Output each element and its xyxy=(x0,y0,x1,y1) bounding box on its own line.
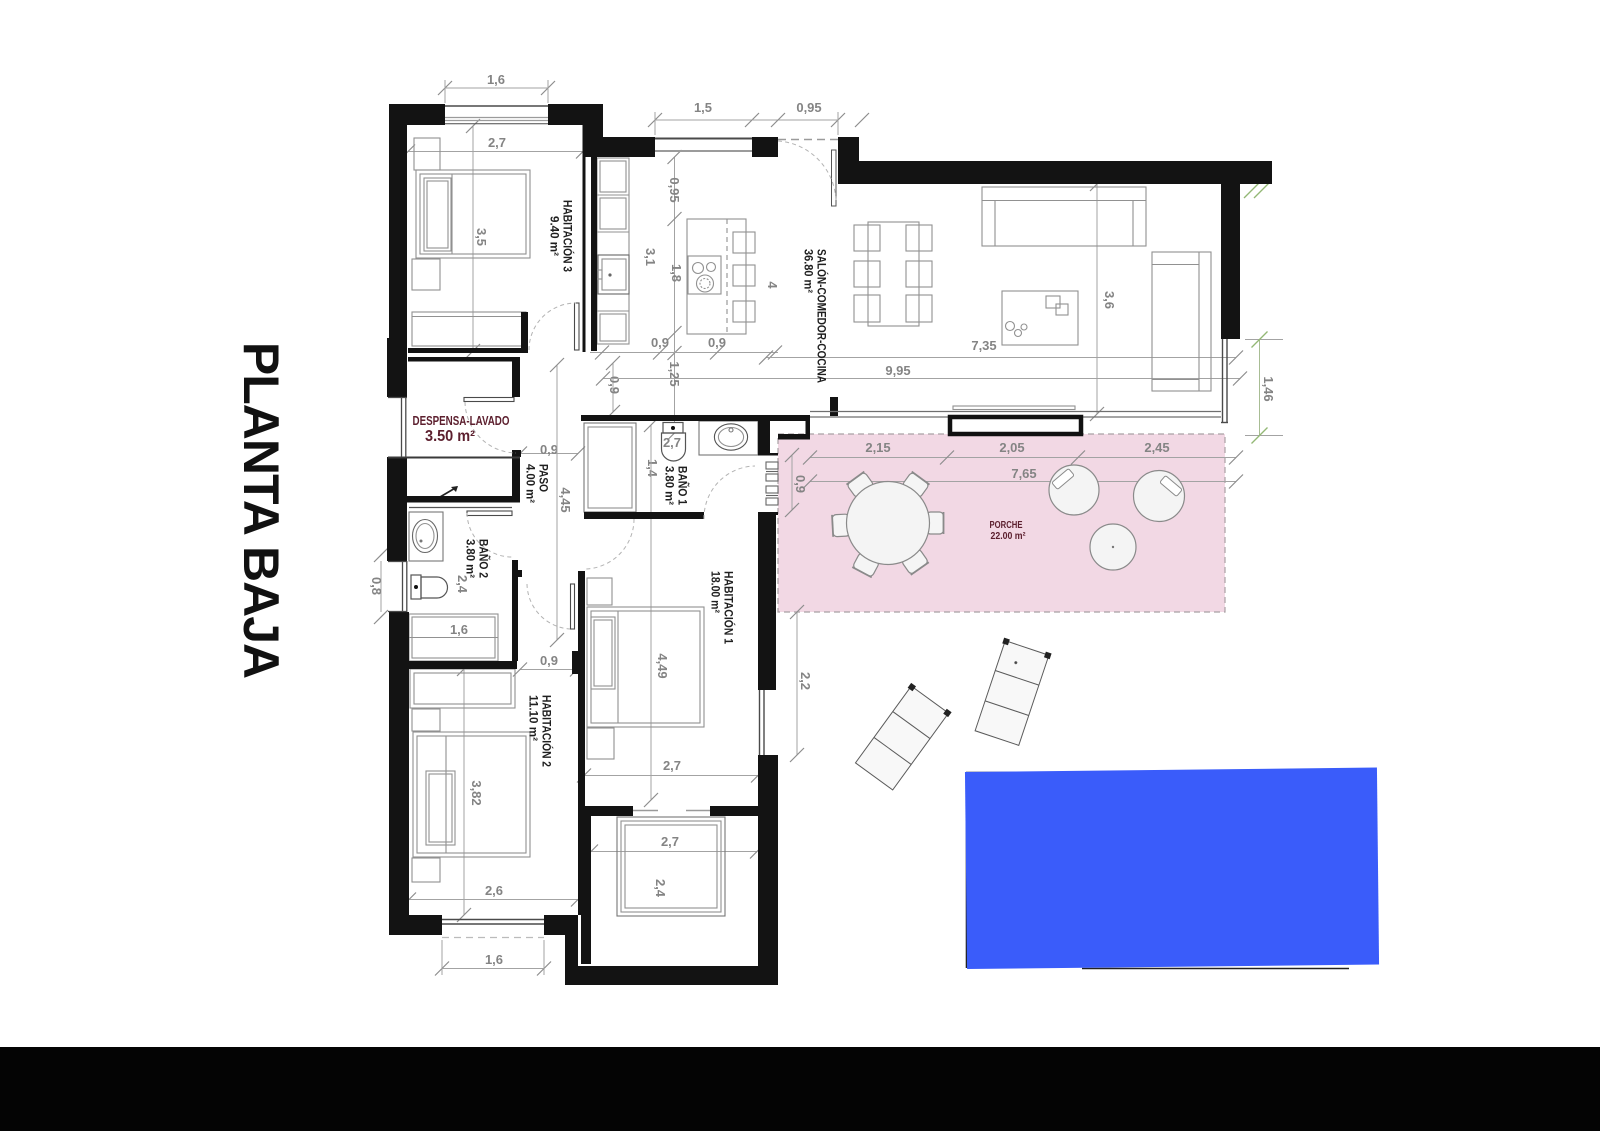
svg-text:2,7: 2,7 xyxy=(661,834,679,849)
svg-text:PASO: PASO xyxy=(537,464,549,492)
svg-text:2,7: 2,7 xyxy=(663,758,681,773)
svg-text:11.10 m²: 11.10 m² xyxy=(527,695,539,741)
svg-text:3,5: 3,5 xyxy=(474,228,489,246)
svg-text:0,8: 0,8 xyxy=(369,577,384,595)
svg-text:2,2: 2,2 xyxy=(798,672,813,690)
svg-text:3,6: 3,6 xyxy=(1102,291,1117,309)
svg-text:22.00 m²: 22.00 m² xyxy=(991,530,1026,542)
svg-text:1,25: 1,25 xyxy=(667,361,682,386)
svg-text:3.50 m²: 3.50 m² xyxy=(425,428,475,445)
svg-text:1,6: 1,6 xyxy=(487,72,505,87)
svg-text:3,1: 3,1 xyxy=(643,248,658,266)
svg-text:HABITACIÓN 2: HABITACIÓN 2 xyxy=(540,695,553,767)
svg-text:2,15: 2,15 xyxy=(865,440,890,455)
svg-text:BAÑO 1: BAÑO 1 xyxy=(676,466,689,506)
svg-text:3,82: 3,82 xyxy=(469,780,484,805)
svg-text:SALÓN-COMEDOR-COCINA: SALÓN-COMEDOR-COCINA xyxy=(815,249,828,383)
svg-text:36.80 m²: 36.80 m² xyxy=(802,249,814,293)
svg-text:18.00 m²: 18.00 m² xyxy=(709,571,721,613)
svg-text:0,9: 0,9 xyxy=(540,442,558,457)
svg-text:2,45: 2,45 xyxy=(1144,440,1169,455)
svg-text:2,7: 2,7 xyxy=(488,135,506,150)
svg-text:1,5: 1,5 xyxy=(694,100,712,115)
svg-text:0,95: 0,95 xyxy=(667,177,682,202)
svg-text:0,9: 0,9 xyxy=(793,475,808,493)
svg-text:2,4: 2,4 xyxy=(653,879,668,898)
svg-text:0,9: 0,9 xyxy=(540,653,558,668)
svg-text:7,65: 7,65 xyxy=(1011,466,1036,481)
svg-text:HABITACIÓN 1: HABITACIÓN 1 xyxy=(722,571,735,645)
svg-text:PLANTA BAJA: PLANTA BAJA xyxy=(233,342,289,678)
svg-text:4,45: 4,45 xyxy=(558,487,573,512)
svg-text:9,95: 9,95 xyxy=(885,363,910,378)
svg-text:3.80 m²: 3.80 m² xyxy=(464,539,476,578)
svg-text:DESPENSA-LAVADO: DESPENSA-LAVADO xyxy=(413,414,510,428)
svg-text:HABITACIÓN 3: HABITACIÓN 3 xyxy=(561,200,574,272)
svg-text:7,35: 7,35 xyxy=(971,338,996,353)
svg-text:1,4: 1,4 xyxy=(645,459,660,478)
svg-text:4,49: 4,49 xyxy=(655,653,670,678)
svg-text:0,95: 0,95 xyxy=(796,100,821,115)
svg-text:2,05: 2,05 xyxy=(999,440,1024,455)
svg-text:1,6: 1,6 xyxy=(450,622,468,637)
svg-text:1,6: 1,6 xyxy=(485,952,503,967)
svg-text:4: 4 xyxy=(765,281,780,289)
svg-text:1,8: 1,8 xyxy=(669,264,684,282)
svg-text:1,46: 1,46 xyxy=(1261,376,1276,401)
svg-text:0,9: 0,9 xyxy=(708,335,726,350)
svg-text:BAÑO 2: BAÑO 2 xyxy=(477,539,490,578)
svg-text:2,6: 2,6 xyxy=(485,883,503,898)
svg-text:0,9: 0,9 xyxy=(651,335,669,350)
svg-text:2,7: 2,7 xyxy=(663,435,681,450)
svg-text:9.40 m²: 9.40 m² xyxy=(548,216,560,256)
svg-text:4.00 m²: 4.00 m² xyxy=(524,464,536,503)
svg-text:3.80 m²: 3.80 m² xyxy=(663,466,675,505)
